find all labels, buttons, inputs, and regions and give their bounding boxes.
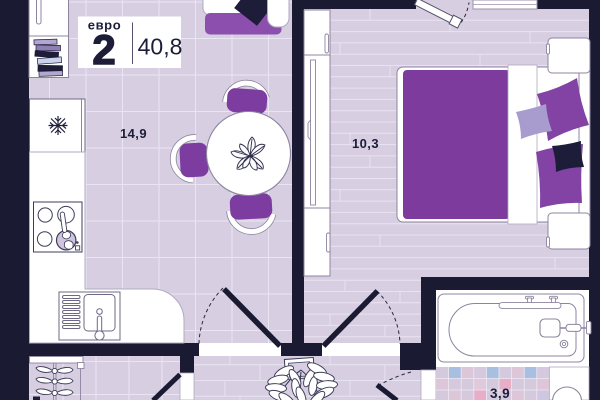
svg-text:10,3: 10,3 — [352, 136, 379, 151]
svg-text:3,9: 3,9 — [490, 386, 510, 400]
svg-text:2: 2 — [92, 26, 115, 73]
svg-text:14,9: 14,9 — [120, 126, 147, 141]
svg-text:40,8: 40,8 — [138, 34, 183, 60]
